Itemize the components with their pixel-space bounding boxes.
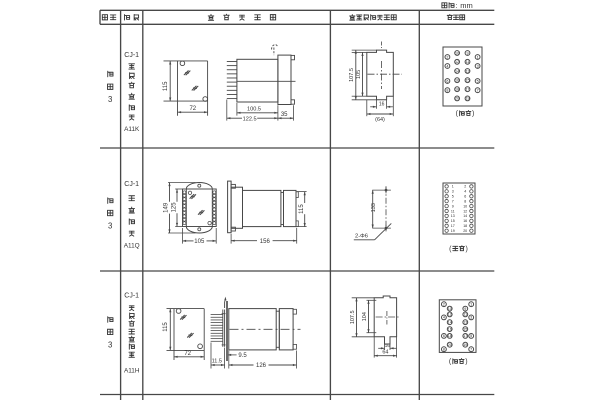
svg-text:19: 19 [465,97,469,101]
svg-text:14: 14 [463,214,467,218]
svg-text:107.5: 107.5 [349,68,355,82]
svg-text:3: 3 [452,190,454,194]
svg-text:3: 3 [108,222,112,231]
svg-text:4: 4 [464,190,466,194]
svg-text:3: 3 [108,341,112,350]
svg-text:2-Φ6: 2-Φ6 [355,234,368,240]
svg-text:15: 15 [463,327,467,331]
svg-text:6: 6 [443,334,445,338]
svg-text:17: 17 [463,334,467,338]
svg-text:126: 126 [256,363,267,369]
svg-text:12: 12 [455,60,459,64]
svg-text:8: 8 [446,88,448,92]
svg-text:17: 17 [465,87,469,91]
svg-text:14: 14 [455,69,459,73]
svg-text:100.5: 100.5 [247,107,261,113]
svg-text:20: 20 [448,343,452,347]
svg-text:115: 115 [163,322,169,332]
svg-text:19: 19 [463,343,467,347]
svg-text:7: 7 [470,347,472,351]
svg-text:5: 5 [452,195,454,199]
svg-text:1: 1 [470,302,472,306]
svg-text:122.5: 122.5 [243,116,257,122]
svg-text:2: 2 [443,302,445,306]
svg-text:9: 9 [452,204,454,208]
svg-text:6: 6 [464,195,466,199]
svg-text:18: 18 [463,224,467,228]
svg-text:7: 7 [452,199,454,203]
svg-text:16: 16 [448,327,452,331]
svg-text:7: 7 [477,88,479,92]
svg-text:13: 13 [451,214,455,218]
svg-text:CJ-1: CJ-1 [124,292,139,299]
svg-text:2: 2 [446,55,448,59]
svg-text:16: 16 [379,101,385,107]
svg-text:13: 13 [463,320,467,324]
svg-text:4: 4 [443,316,445,320]
svg-text:8: 8 [464,199,466,203]
svg-text:A11K: A11K [124,126,140,133]
svg-text:mm: mm [460,1,473,10]
svg-text:107.5: 107.5 [350,310,356,324]
svg-text:20: 20 [463,229,467,233]
svg-text:11: 11 [451,209,455,213]
svg-text:12: 12 [463,209,467,213]
svg-text:115: 115 [299,204,305,214]
svg-text:105: 105 [194,239,205,245]
svg-text:16: 16 [463,219,467,223]
svg-text:72: 72 [184,351,191,357]
svg-text:19: 19 [451,229,455,233]
svg-text:14: 14 [448,320,452,324]
svg-text:16: 16 [385,343,391,348]
svg-text:8: 8 [443,347,445,351]
svg-text:): ) [466,246,468,253]
svg-text:9: 9 [464,307,466,311]
svg-text:(64): (64) [375,117,385,123]
svg-text:133: 133 [371,203,377,212]
svg-text:A11H: A11H [124,367,140,374]
svg-text:105: 105 [356,70,362,79]
svg-text:9.5: 9.5 [238,353,247,359]
svg-text:11: 11 [463,313,467,317]
svg-text:11: 11 [466,60,470,64]
svg-text:CJ-1: CJ-1 [124,52,139,59]
svg-text:CJ-1: CJ-1 [124,181,139,188]
svg-text:6: 6 [446,79,448,83]
svg-text:18: 18 [448,334,452,338]
svg-text:5: 5 [470,334,472,338]
svg-text:13: 13 [465,69,469,73]
svg-text:11.5: 11.5 [212,358,222,364]
svg-text:125: 125 [171,202,177,213]
svg-text:10: 10 [448,307,452,311]
svg-text:156: 156 [260,239,271,245]
svg-text:15: 15 [451,219,455,223]
svg-text:3: 3 [470,316,472,320]
svg-text:3: 3 [477,64,479,68]
svg-text:72: 72 [189,106,196,112]
svg-text:10: 10 [455,51,459,55]
svg-text:104: 104 [362,312,368,321]
svg-text:15: 15 [465,78,469,82]
svg-text:A11Q: A11Q [124,243,140,250]
svg-text:35: 35 [281,112,288,118]
svg-text:2: 2 [464,185,466,189]
svg-text:12: 12 [448,313,452,317]
svg-text:4: 4 [446,64,448,68]
svg-text:): ) [472,111,474,118]
svg-text:1: 1 [477,55,479,59]
svg-text:1: 1 [452,185,454,189]
svg-text:16: 16 [455,78,459,82]
svg-text:18: 18 [455,87,459,91]
svg-text:20: 20 [455,97,459,101]
svg-text:3: 3 [108,95,112,104]
svg-text::: : [456,3,458,10]
svg-text:115: 115 [163,81,169,91]
svg-text:): ) [465,359,467,366]
svg-text:10: 10 [463,204,467,208]
svg-text:9: 9 [466,51,468,55]
svg-text:5: 5 [477,79,479,83]
svg-text:17: 17 [451,224,455,228]
svg-text:64: 64 [382,350,388,356]
svg-text:149: 149 [164,202,170,213]
